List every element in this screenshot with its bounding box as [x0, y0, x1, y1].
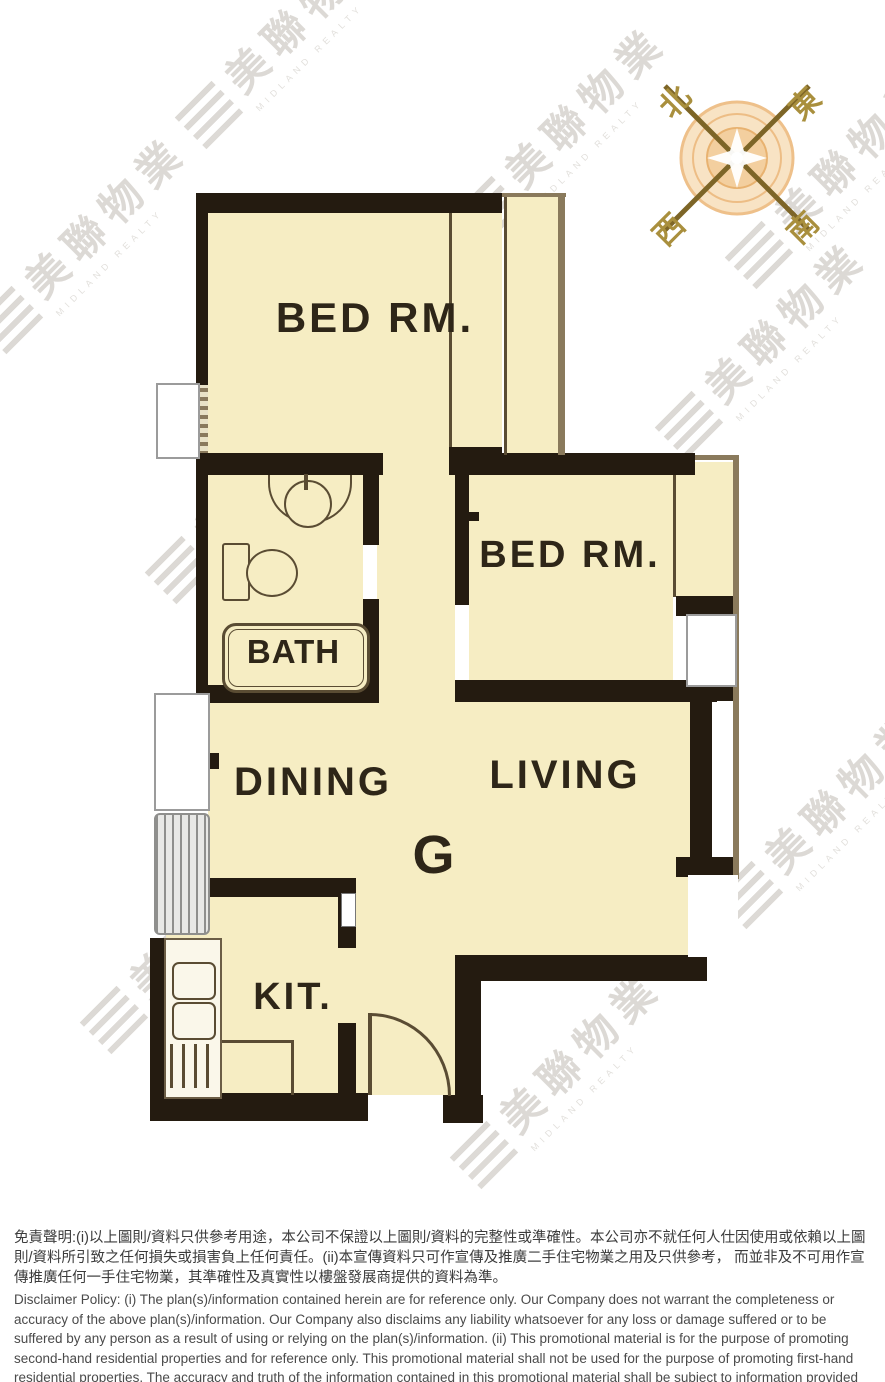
bedroom2-bay-window [676, 462, 733, 598]
disclaimer-chinese: 免責聲明:(i)以上圖則/資料只供參考用途，本公司不保證以上圖則/資料的完整性或… [14, 1228, 874, 1288]
bedroom2-door-stop [455, 512, 479, 521]
room-label-bedroom2: BED RM. [460, 534, 680, 577]
wall [690, 701, 712, 877]
stove-burner-icon [172, 962, 216, 1000]
floor-plan-page: 美聯物業MIDLAND REALTY 美聯物業MIDLAND REALTY 美聯… [0, 0, 885, 1382]
midland-watermark: 美聯物業MIDLAND REALTY [164, 0, 408, 158]
partition-line [504, 197, 507, 455]
dining-window-box [154, 693, 210, 811]
wall [196, 453, 383, 475]
sink-drainer-icon [170, 1044, 216, 1088]
room-label-bedroom1: BED RM. [250, 294, 500, 342]
wall [455, 453, 695, 475]
midland-logo-icon [79, 985, 148, 1054]
bedroom2-floor [469, 475, 673, 682]
hallway-floor [377, 455, 455, 705]
disclaimer-english: Disclaimer Policy: (i) The plan(s)/infor… [14, 1290, 874, 1382]
compass-rose: 北 東 西 南 [650, 70, 830, 250]
bedroom1-window-box [156, 383, 200, 459]
stove-burner-icon [172, 1002, 216, 1040]
midland-logo-icon [0, 285, 43, 354]
wash-basin-icon [284, 480, 332, 528]
unit-label: G [400, 824, 470, 886]
kitchen-counter-line [291, 1040, 294, 1095]
ac-louvre [154, 813, 210, 935]
midland-logo-icon [654, 390, 723, 459]
entrance-door-leaf [368, 1013, 372, 1095]
midland-logo-icon [174, 80, 243, 149]
wall [443, 1095, 483, 1123]
wall [455, 955, 707, 981]
room-label-dining: DINING [213, 760, 413, 805]
curtain-wall-line [558, 197, 565, 455]
midland-watermark: 美聯物業MIDLAND REALTY [644, 225, 885, 469]
midland-watermark: 美聯物業MIDLAND REALTY [0, 120, 208, 364]
wall [363, 475, 379, 545]
bedroom1-bay-strip [504, 197, 562, 455]
wall [208, 878, 356, 897]
midland-logo-icon [449, 1120, 518, 1189]
wall [196, 213, 208, 385]
wall [196, 193, 502, 213]
wall [676, 596, 734, 616]
room-label-living: LIVING [465, 753, 665, 798]
ac-platform-living [688, 875, 738, 957]
wall [196, 455, 208, 687]
toilet-bowl-icon [246, 549, 298, 597]
kitchen-counter-line [215, 1040, 294, 1043]
curtain-wall-line [502, 193, 566, 197]
wall-niche [341, 893, 356, 927]
room-label-kitchen: KIT. [218, 976, 368, 1019]
wall [676, 857, 734, 877]
faucet-icon [304, 474, 308, 490]
curtain-wall-line [695, 455, 735, 460]
room-label-bathroom: BATH [226, 633, 361, 671]
ac-platform-bedroom2 [686, 614, 737, 687]
